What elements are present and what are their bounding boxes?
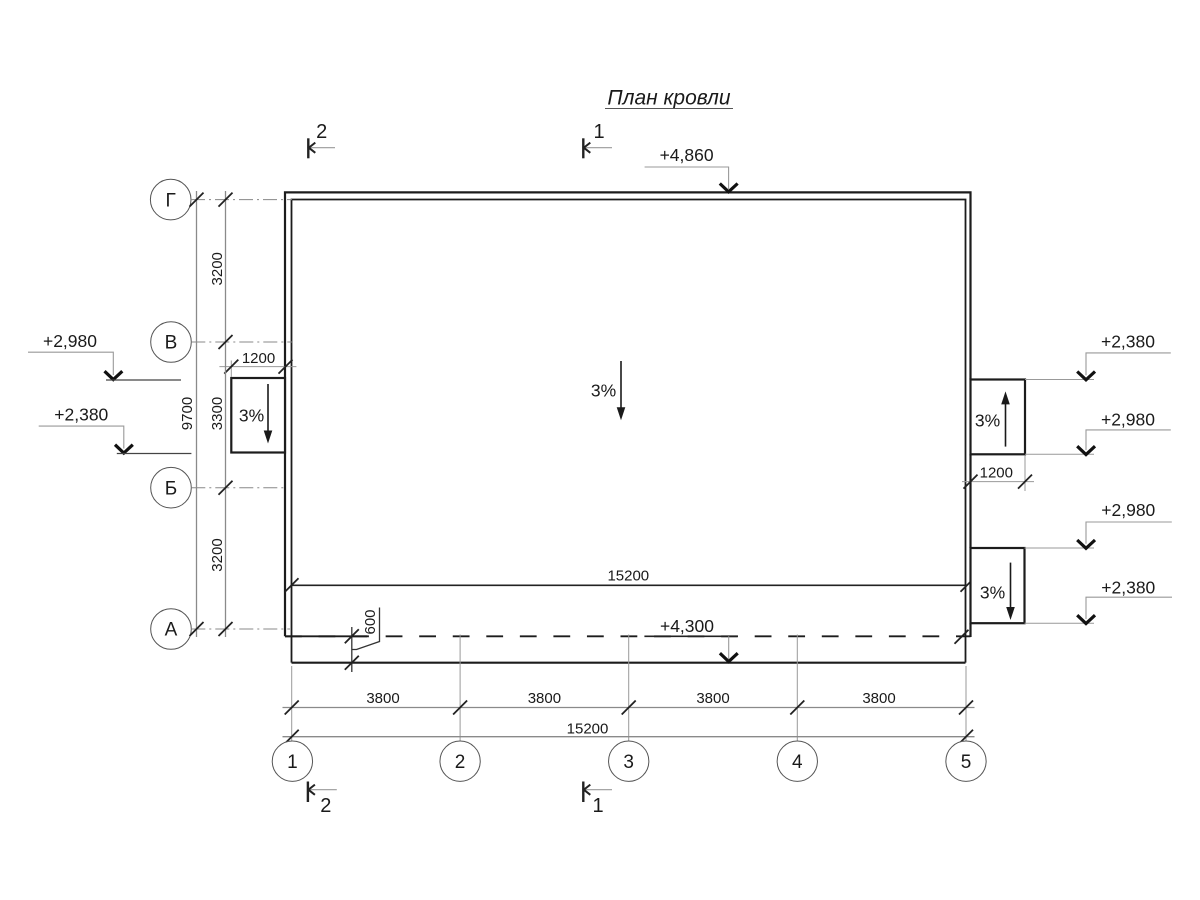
svg-text:1: 1 <box>287 752 298 773</box>
svg-text:3800: 3800 <box>366 690 399 707</box>
svg-text:3800: 3800 <box>862 690 895 707</box>
svg-text:3200: 3200 <box>209 252 226 285</box>
svg-text:2: 2 <box>455 752 466 773</box>
svg-text:А: А <box>165 620 178 641</box>
svg-text:3%: 3% <box>975 411 1000 431</box>
svg-text:15200: 15200 <box>567 721 609 738</box>
svg-text:+2,980: +2,980 <box>1101 410 1155 430</box>
svg-text:2: 2 <box>320 795 331 817</box>
svg-text:1200: 1200 <box>980 465 1013 482</box>
svg-text:1: 1 <box>592 795 603 817</box>
svg-text:1: 1 <box>593 121 604 143</box>
svg-text:9700: 9700 <box>179 397 196 430</box>
svg-text:Б: Б <box>165 478 177 499</box>
svg-text:+2,380: +2,380 <box>1101 332 1155 352</box>
svg-text:1200: 1200 <box>242 350 275 367</box>
svg-text:План кровли: План кровли <box>607 87 731 110</box>
svg-text:3%: 3% <box>239 406 264 426</box>
svg-text:600: 600 <box>362 609 379 634</box>
svg-text:+4,300: +4,300 <box>660 616 714 636</box>
svg-text:+2,380: +2,380 <box>1101 578 1155 598</box>
svg-text:5: 5 <box>961 752 972 773</box>
svg-text:3%: 3% <box>591 381 616 401</box>
svg-text:3800: 3800 <box>696 690 729 707</box>
svg-text:В: В <box>165 333 178 354</box>
svg-text:+2,980: +2,980 <box>43 331 97 351</box>
svg-text:15200: 15200 <box>607 568 649 585</box>
svg-text:+4,860: +4,860 <box>660 145 714 165</box>
svg-text:3300: 3300 <box>209 397 226 430</box>
svg-text:3: 3 <box>623 752 634 773</box>
svg-text:3800: 3800 <box>528 690 561 707</box>
svg-text:+2,980: +2,980 <box>1101 500 1155 520</box>
svg-text:3%: 3% <box>980 583 1005 603</box>
svg-text:3200: 3200 <box>209 538 226 571</box>
svg-text:4: 4 <box>792 752 803 773</box>
svg-text:2: 2 <box>316 121 327 143</box>
svg-text:+2,380: +2,380 <box>54 405 108 425</box>
svg-text:Г: Г <box>166 190 176 211</box>
